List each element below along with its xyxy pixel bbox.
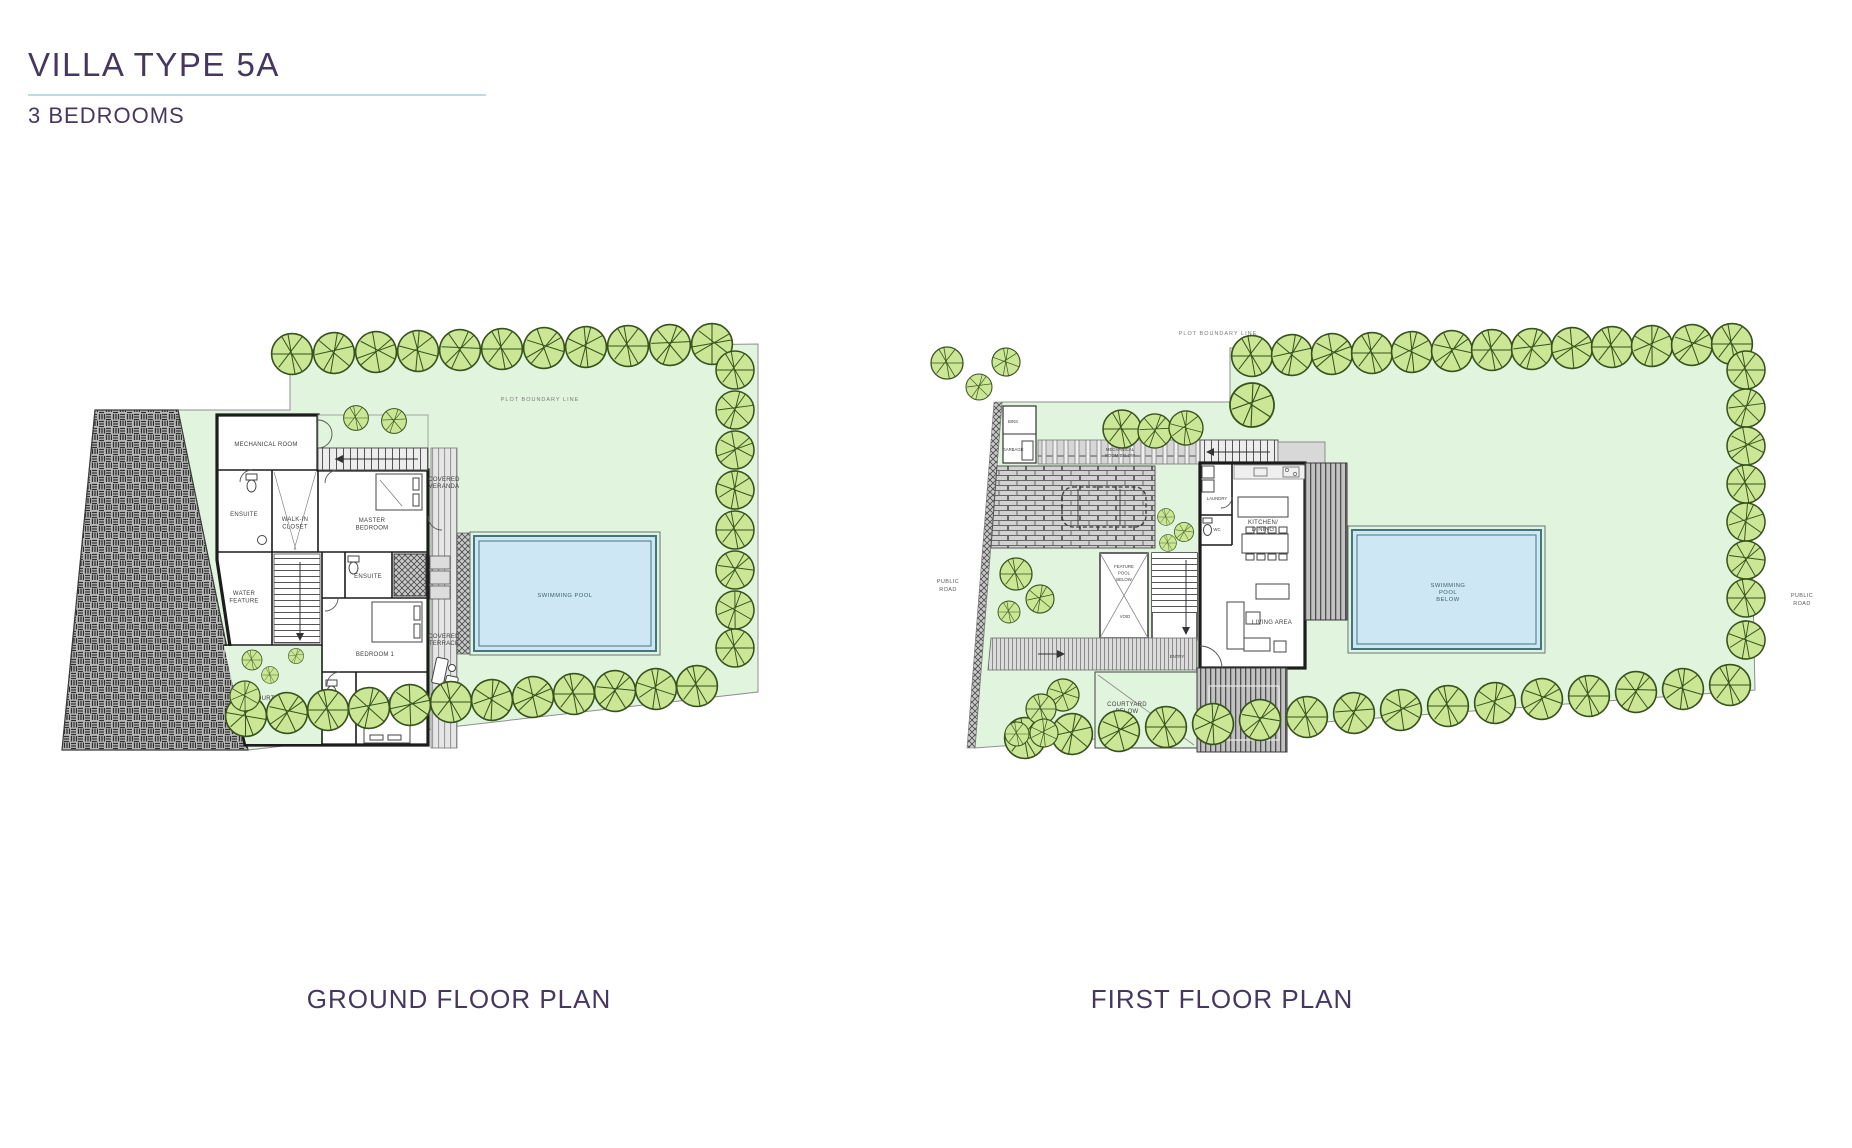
floor-plans-canvas: SWIMMING POOL xyxy=(0,0,1852,1148)
label-laundry: LAUNDRY xyxy=(1207,496,1228,501)
tree-icon xyxy=(677,666,718,707)
tree-icon xyxy=(1000,558,1032,590)
label-ensuite-mid: ENSUITE xyxy=(354,574,382,580)
entry-walkway xyxy=(988,638,1197,670)
bed-1 xyxy=(372,602,422,642)
label-public-road-left: PUBLICROAD xyxy=(937,579,959,593)
label-plot-boundary-ground: PLOT BOUNDARY LINE xyxy=(501,397,580,403)
tree-icon xyxy=(1710,665,1751,706)
tree-icon xyxy=(988,344,1024,380)
label-bins: BINS xyxy=(1008,419,1018,424)
label-entry: ENTRY xyxy=(1170,654,1185,659)
tree-icon xyxy=(262,667,279,684)
tree-icon xyxy=(608,326,649,367)
brochure-page: { "page": { "title": "VILLA TYPE 5A", "s… xyxy=(0,0,1852,1148)
tree-icon xyxy=(1352,333,1393,374)
tree-icon xyxy=(1160,535,1177,552)
tree-icon xyxy=(931,347,963,379)
tree-icon xyxy=(1103,410,1141,448)
label-master-bedroom: MASTERBEDROOM xyxy=(356,518,389,532)
tree-icon xyxy=(1472,330,1513,371)
tree-icon xyxy=(272,334,313,375)
stair-treads xyxy=(1152,553,1197,613)
label-living-area: LIVING AREA xyxy=(1252,620,1292,626)
label-covered-veranda: COVEREDVERANDA xyxy=(428,477,460,490)
veranda-steps xyxy=(430,556,450,599)
tree-icon xyxy=(998,601,1020,623)
label-water-feature: WATERFEATURE xyxy=(229,591,258,605)
tree-icon xyxy=(389,684,431,726)
kitchen-island xyxy=(1238,497,1288,517)
villa-outline-first xyxy=(1200,463,1305,668)
tree-icon xyxy=(308,690,349,731)
staircase-ground xyxy=(274,554,320,643)
tree-icon xyxy=(242,650,262,670)
first-floor-plan: BINS GARBAGE xyxy=(931,318,1813,763)
ground-floor-plan: SWIMMING POOL xyxy=(62,316,762,750)
label-ensuite-left: ENSUITE xyxy=(230,512,258,518)
tree-icon xyxy=(1592,327,1633,368)
tree-icon xyxy=(554,674,595,715)
tree-icon xyxy=(1158,509,1175,526)
tree-icon xyxy=(716,629,754,667)
label-wc: WC xyxy=(1213,527,1220,532)
tree-icon xyxy=(961,369,998,406)
tree-icon xyxy=(716,511,754,549)
label-covered-terrace: COVEREDTERRACE xyxy=(428,634,460,647)
driveway-first xyxy=(991,466,1155,548)
tree-icon xyxy=(1727,351,1765,389)
label-void-feature-pool: VOID xyxy=(1120,614,1131,619)
tree-icon xyxy=(1005,722,1029,746)
planter-box xyxy=(394,554,426,596)
bins-garbage-store xyxy=(1003,406,1036,463)
label-swimming-pool: SWIMMING POOL xyxy=(537,593,592,599)
tree-icon xyxy=(1727,465,1765,503)
label-public-road-right: PUBLICROAD xyxy=(1791,593,1813,607)
tree-icon xyxy=(482,329,523,370)
label-walk-in-closet: WALK-INCLOSET xyxy=(282,517,309,531)
tree-icon xyxy=(1146,707,1187,748)
label-bedroom-1: BEDROOM 1 xyxy=(356,652,395,658)
tree-icon xyxy=(716,351,754,389)
label-garbage: GARBAGE xyxy=(1002,447,1023,452)
tree-icon xyxy=(1727,579,1765,617)
label-mechanical-room: MECHANICAL ROOM xyxy=(234,442,297,448)
entry-canopy-roof xyxy=(1278,442,1325,463)
master-bed xyxy=(376,474,422,510)
tree-icon xyxy=(344,406,369,431)
label-kitchen-dining: KITCHEN/DINING xyxy=(1248,520,1278,533)
tree-icon xyxy=(1569,676,1610,717)
veranda-roof-louvres xyxy=(1305,463,1347,620)
tree-icon xyxy=(431,682,472,723)
tree-icon xyxy=(1428,686,1469,727)
tree-icon xyxy=(1232,336,1273,377)
entry-garden-strip xyxy=(318,415,428,448)
wc-fixture xyxy=(1203,518,1212,536)
tree-icon xyxy=(1287,697,1328,738)
